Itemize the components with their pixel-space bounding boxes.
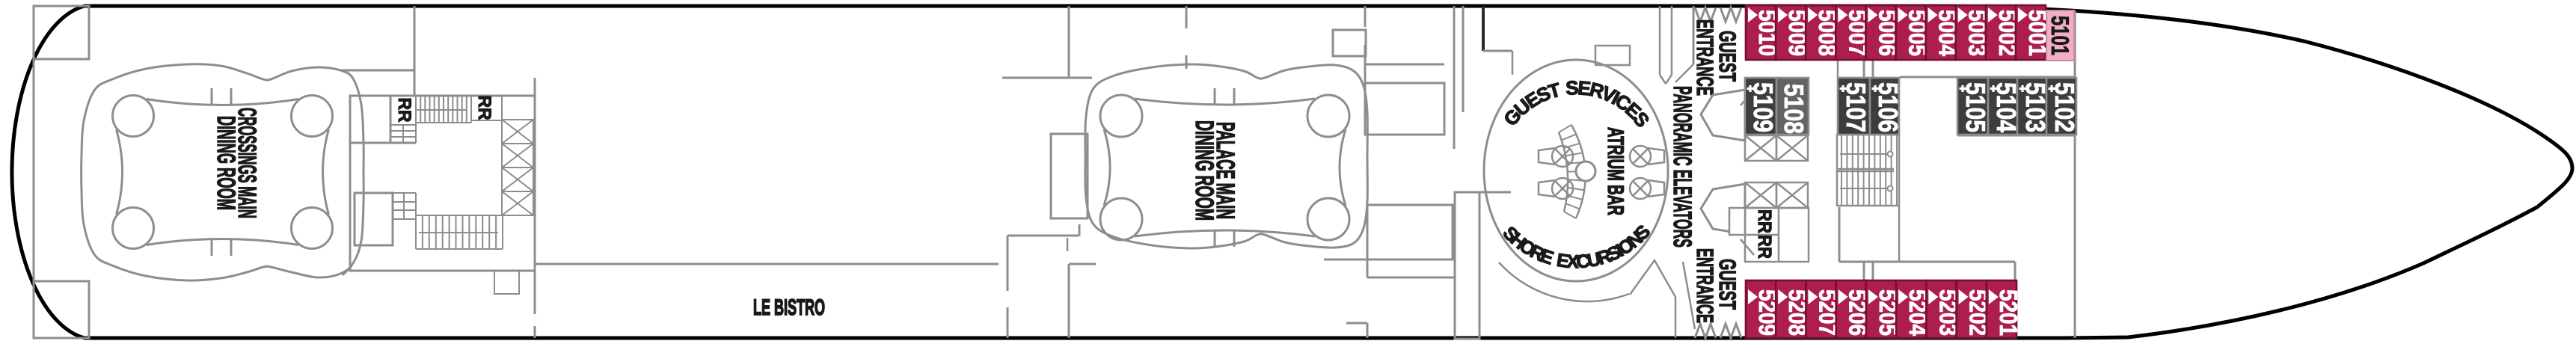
svg-text:SHORE EXCURSIONS: SHORE EXCURSIONS [1499, 221, 1655, 272]
svg-text:LE BISTRO: LE BISTRO [753, 295, 825, 320]
svg-text:5107: 5107 [1841, 82, 1871, 132]
svg-text:5109: 5109 [1748, 82, 1779, 132]
svg-text:RR: RR [474, 96, 494, 120]
svg-text:RR: RR [1754, 209, 1775, 233]
svg-text:ENTRANCE: ENTRANCE [1692, 19, 1718, 96]
svg-text:DINING ROOM: DINING ROOM [212, 116, 240, 210]
svg-text:DINING ROOM: DINING ROOM [1190, 120, 1218, 221]
svg-text:5105: 5105 [1960, 82, 1991, 132]
svg-text:5106: 5106 [1873, 82, 1904, 132]
svg-text:PANORAMIC ELEVATORS: PANORAMIC ELEVATORS [1668, 86, 1696, 248]
svg-text:RR: RR [1754, 235, 1775, 259]
svg-text:5102: 5102 [2049, 82, 2080, 132]
svg-text:GUEST SERVICES: GUEST SERVICES [1499, 76, 1654, 132]
svg-text:5201: 5201 [1995, 289, 2023, 336]
svg-text:ATRIUM BAR: ATRIUM BAR [1603, 127, 1628, 215]
svg-text:5108: 5108 [1779, 84, 1809, 134]
svg-text:5101: 5101 [2046, 16, 2074, 55]
svg-text:ENTRANCE: ENTRANCE [1692, 248, 1718, 323]
svg-text:RR: RR [394, 98, 414, 123]
